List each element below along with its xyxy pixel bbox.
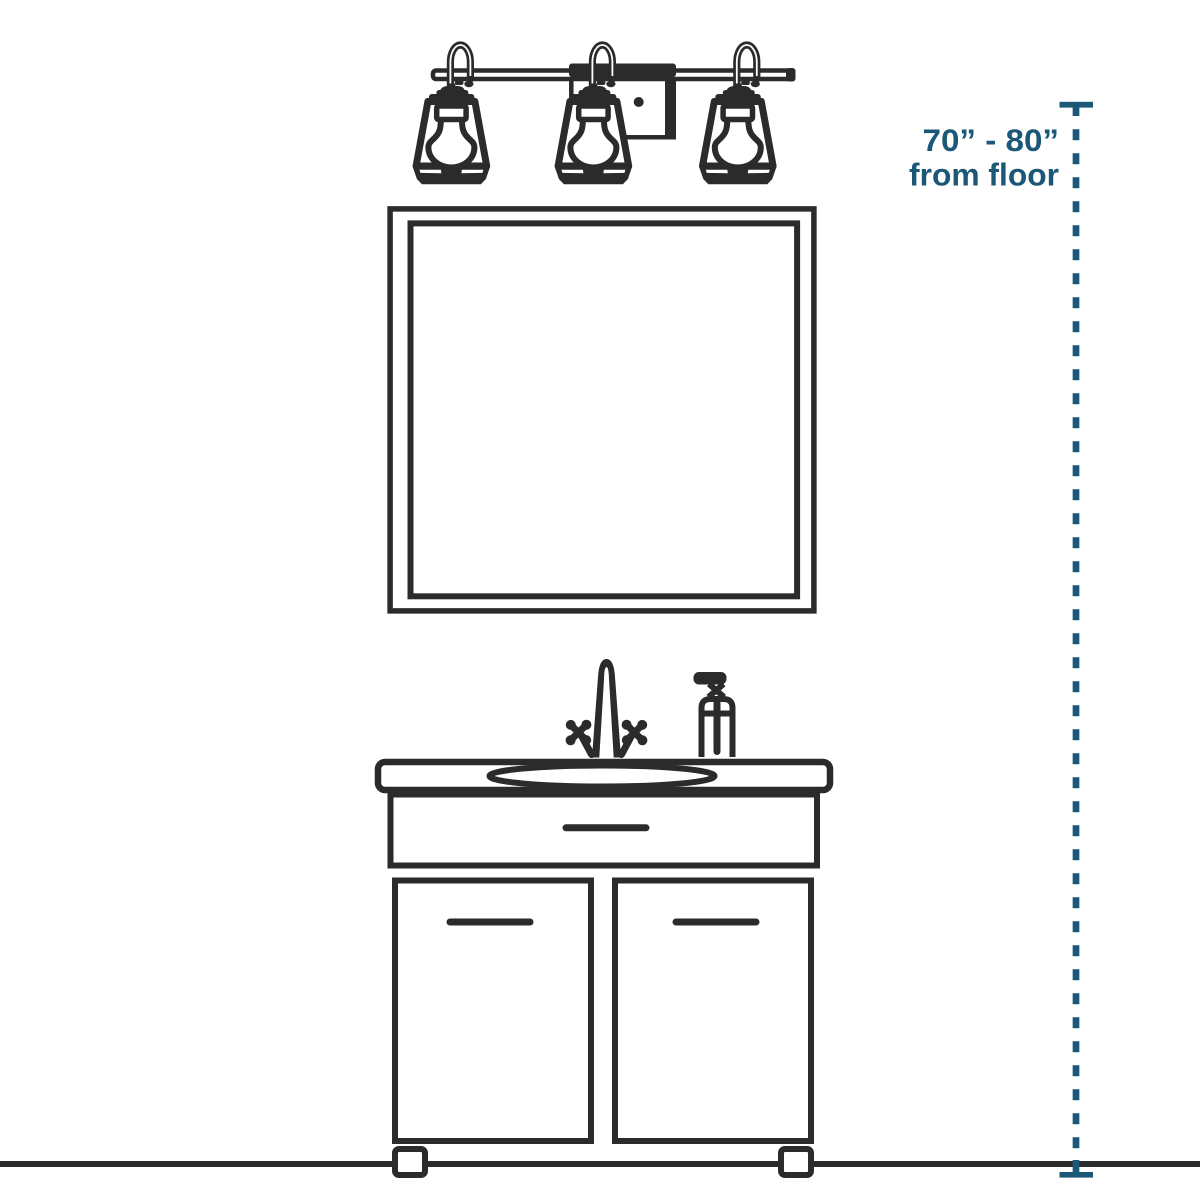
svg-text:from floor: from floor bbox=[909, 157, 1059, 193]
svg-text:70” - 80”: 70” - 80” bbox=[923, 122, 1060, 158]
